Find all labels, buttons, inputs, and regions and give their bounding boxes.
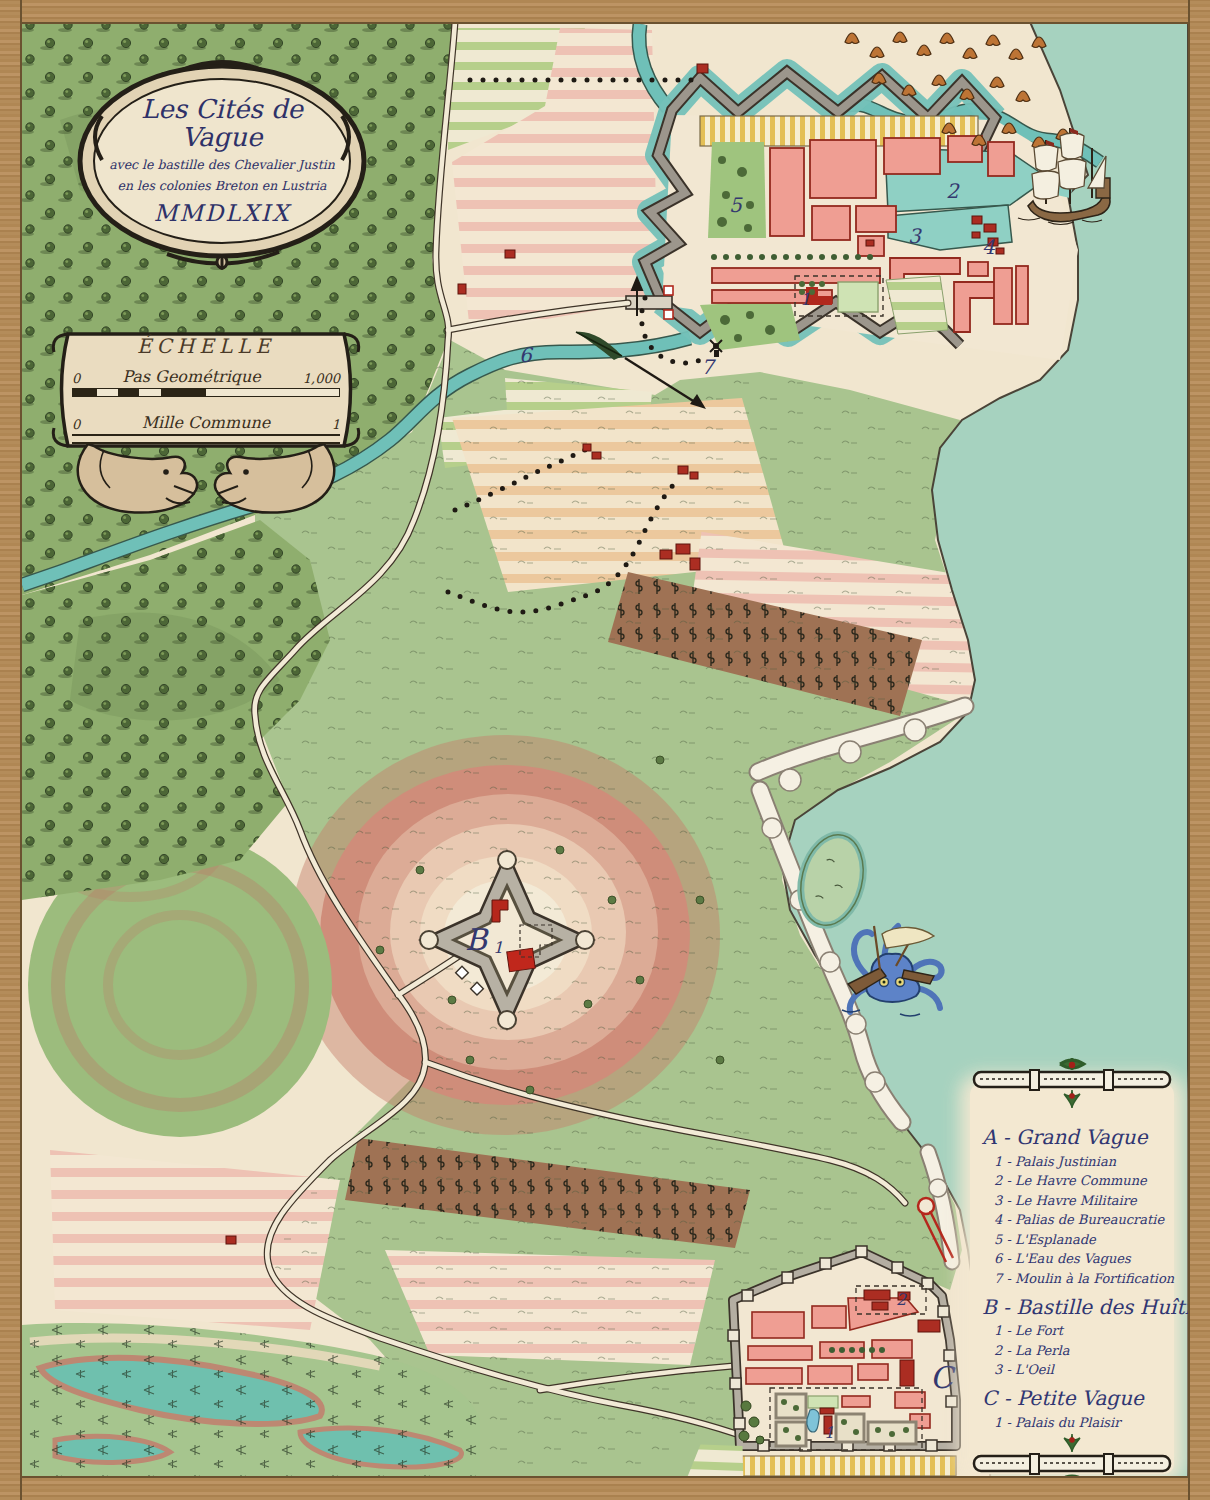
frame-bottom <box>0 1476 1210 1500</box>
label-pv-1: 1 <box>824 1423 834 1442</box>
legend-item: 1 - Palais du Plaisir <box>994 1415 1170 1430</box>
west-bridge <box>626 296 672 309</box>
legend-heading-c: C - Petite Vague <box>982 1386 1170 1410</box>
legend-item: 3 - L'Oeil <box>994 1362 1170 1377</box>
scale-bar2-end: 1 <box>332 417 340 432</box>
legend-item: 4 - Palias de Bureaucratie <box>994 1212 1170 1227</box>
map-title: Les Cités de Vague <box>100 96 344 151</box>
legend-scroll-top <box>968 1058 1176 1114</box>
dolphin-right-icon <box>215 444 334 513</box>
scale-bar1 <box>72 388 340 397</box>
scale-bar1-label: Pas Geométrique <box>122 367 261 386</box>
scale-bar2-labels: 0 Mille Commune 1 <box>72 413 340 432</box>
scale-heading: ÉCHELLE <box>72 334 340 358</box>
map-year: MMDLXIX <box>154 200 291 226</box>
legend-item: 2 - La Perla <box>994 1343 1170 1358</box>
legend-item: 1 - Le Fort <box>994 1323 1170 1338</box>
label-gv-2: 2 <box>946 179 960 203</box>
title-cartouche-text: Les Cités de Vague avec le bastille des … <box>100 86 344 236</box>
frame-right <box>1188 0 1210 1500</box>
label-gv-4: 4 <box>982 235 995 259</box>
scale-bar2-label: Mille Commune <box>142 413 271 432</box>
scale-bar2-start: 0 <box>72 417 80 432</box>
label-gv-1: 1 <box>800 289 811 309</box>
legend-item: 7 - Moulin à la Fortification <box>994 1271 1170 1286</box>
legend-item: 2 - Le Havre Commune <box>994 1173 1170 1188</box>
scale-bar1-start: 0 <box>72 371 80 386</box>
label-pv-2: 2 <box>896 1290 907 1309</box>
legend-item: 6 - L'Eau des Vagues <box>994 1251 1170 1266</box>
label-gv-5: 5 <box>729 193 743 217</box>
title-cartouche: Les Cités de Vague avec le bastille des … <box>72 56 372 276</box>
frame-left <box>0 0 22 1500</box>
legend-heading-a: A - Grand Vague <box>982 1125 1170 1149</box>
legend-entries: A - Grand Vague 1 - Palais Justinian 2 -… <box>982 1116 1170 1430</box>
legend-item: 5 - L'Esplanade <box>994 1232 1170 1247</box>
scale-bar1-end: 1,000 <box>303 371 340 386</box>
legend-heading-b: B - Bastille des Huîtres <box>982 1295 1170 1319</box>
scale-bar2 <box>72 434 340 444</box>
label-b: B <box>465 922 489 957</box>
scale-bar1-labels: 0 Pas Geométrique 1,000 <box>72 367 340 386</box>
dolphin-left-icon <box>78 444 197 513</box>
frame-top <box>0 0 1210 24</box>
legend-item: 1 - Palais Justinian <box>994 1154 1170 1169</box>
scale-text: ÉCHELLE 0 Pas Geométrique 1,000 0 Mille … <box>72 334 340 444</box>
legend-panel: A - Grand Vague 1 - Palais Justinian 2 -… <box>968 1058 1176 1486</box>
label-gv-3: 3 <box>908 224 922 248</box>
map-subtitle-1: avec le bastille des Chevalier Justin <box>109 158 335 172</box>
legend-item: 3 - Le Havre Militaire <box>994 1193 1170 1208</box>
label-c: C <box>930 1360 956 1395</box>
label-b-1: 1 <box>493 938 503 957</box>
scale-cartouche: ÉCHELLE 0 Pas Geométrique 1,000 0 Mille … <box>46 318 366 533</box>
map-subtitle-2: en les colonies Breton en Lustria <box>118 179 327 193</box>
antique-map-page: 5 1 2 3 4 6 7 B 1 C 1 2 Les Cités de Vag… <box>0 0 1210 1500</box>
